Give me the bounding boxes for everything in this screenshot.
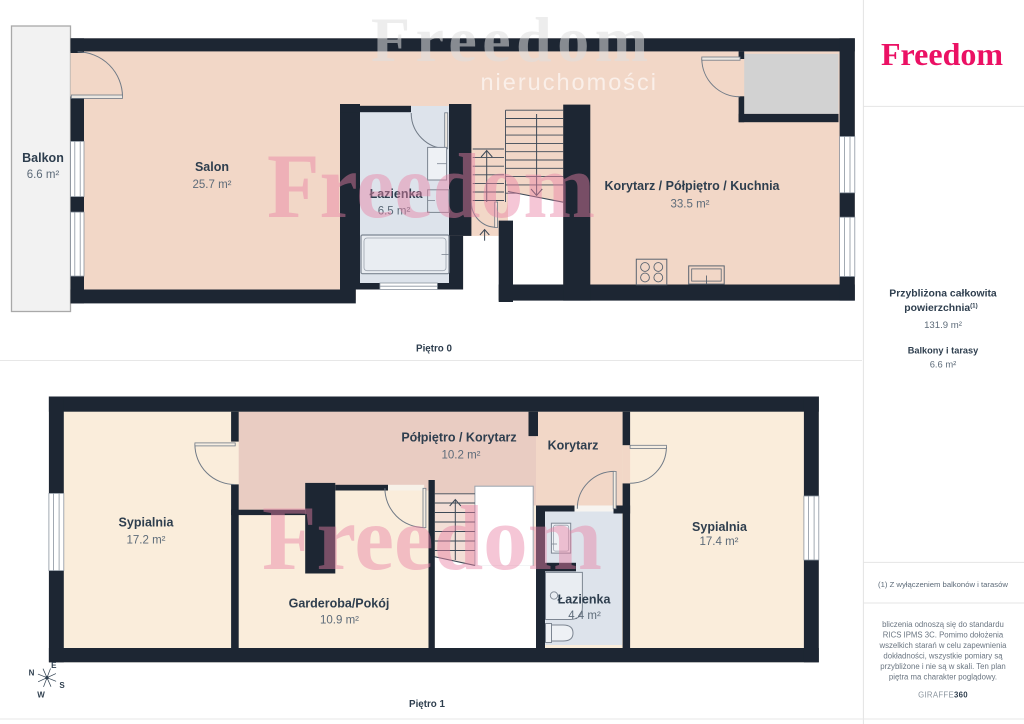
svg-text:Półpiętro / Korytarz: Półpiętro / Korytarz (401, 431, 516, 445)
svg-text:dokładności, wszystkie pomiary: dokładności, wszystkie pomiary są (883, 652, 1003, 661)
svg-text:6.6 m²: 6.6 m² (930, 359, 957, 370)
svg-text:131.9 m²: 131.9 m² (924, 320, 963, 331)
svg-text:Balkon: Balkon (22, 151, 64, 165)
svg-text:powierzchnia(1): powierzchnia(1) (904, 303, 977, 315)
svg-text:6.6 m²: 6.6 m² (27, 169, 60, 181)
svg-text:10.9 m²: 10.9 m² (320, 615, 359, 627)
svg-text:Freedom: Freedom (371, 4, 654, 75)
svg-text:Balkony i tarasy: Balkony i tarasy (908, 346, 979, 356)
svg-text:W: W (37, 691, 45, 700)
svg-text:Garderoba/Pokój: Garderoba/Pokój (289, 597, 390, 611)
svg-text:(1) Z wyłączeniem balkonów i t: (1) Z wyłączeniem balkonów i tarasów (878, 580, 1008, 589)
svg-text:4.4 m²: 4.4 m² (568, 610, 601, 622)
svg-text:piętra ma charakter poglądowy.: piętra ma charakter poglądowy. (889, 673, 997, 682)
svg-text:GIRAFFE360: GIRAFFE360 (918, 691, 968, 700)
svg-text:Piętro 0: Piętro 0 (416, 344, 452, 355)
svg-text:RICS IPMS 3C. Pomimo dołożenia: RICS IPMS 3C. Pomimo dołożenia (883, 631, 1004, 640)
svg-text:przybliżone i nie są w skali.: przybliżone i nie są w skali. Ten plan (880, 662, 1006, 671)
svg-text:Korytarz: Korytarz (548, 439, 599, 453)
svg-text:Salon: Salon (195, 160, 229, 174)
svg-text:17.4 m²: 17.4 m² (700, 536, 739, 548)
svg-text:Freedom: Freedom (262, 487, 602, 589)
svg-text:Piętro 1: Piętro 1 (409, 699, 445, 710)
svg-text:Sypialnia: Sypialnia (692, 520, 748, 534)
svg-text:Korytarz / Półpiętro / Kuchnia: Korytarz / Półpiętro / Kuchnia (604, 179, 780, 193)
svg-text:E: E (51, 661, 57, 670)
svg-text:N: N (29, 669, 35, 678)
svg-text:Freedom: Freedom (881, 36, 1003, 72)
svg-text:Freedom: Freedom (267, 135, 595, 237)
svg-text:wszelkich starań w celu zapewn: wszelkich starań w celu zapewnienia (879, 641, 1008, 650)
svg-text:33.5 m²: 33.5 m² (671, 199, 710, 211)
svg-text:Sypialnia: Sypialnia (119, 516, 175, 530)
svg-text:25.7 m²: 25.7 m² (193, 179, 232, 191)
svg-text:17.2 m²: 17.2 m² (127, 535, 166, 547)
svg-text:10.2 m²: 10.2 m² (442, 450, 481, 462)
svg-text:nieruchomości: nieruchomości (480, 69, 658, 95)
svg-text:Przybliżona całkowita: Przybliżona całkowita (889, 289, 997, 300)
svg-text:S: S (59, 681, 65, 690)
svg-text:bliczenia odnoszą się do stand: bliczenia odnoszą się do standardu (882, 620, 1004, 629)
svg-text:Łazienka: Łazienka (558, 593, 612, 607)
